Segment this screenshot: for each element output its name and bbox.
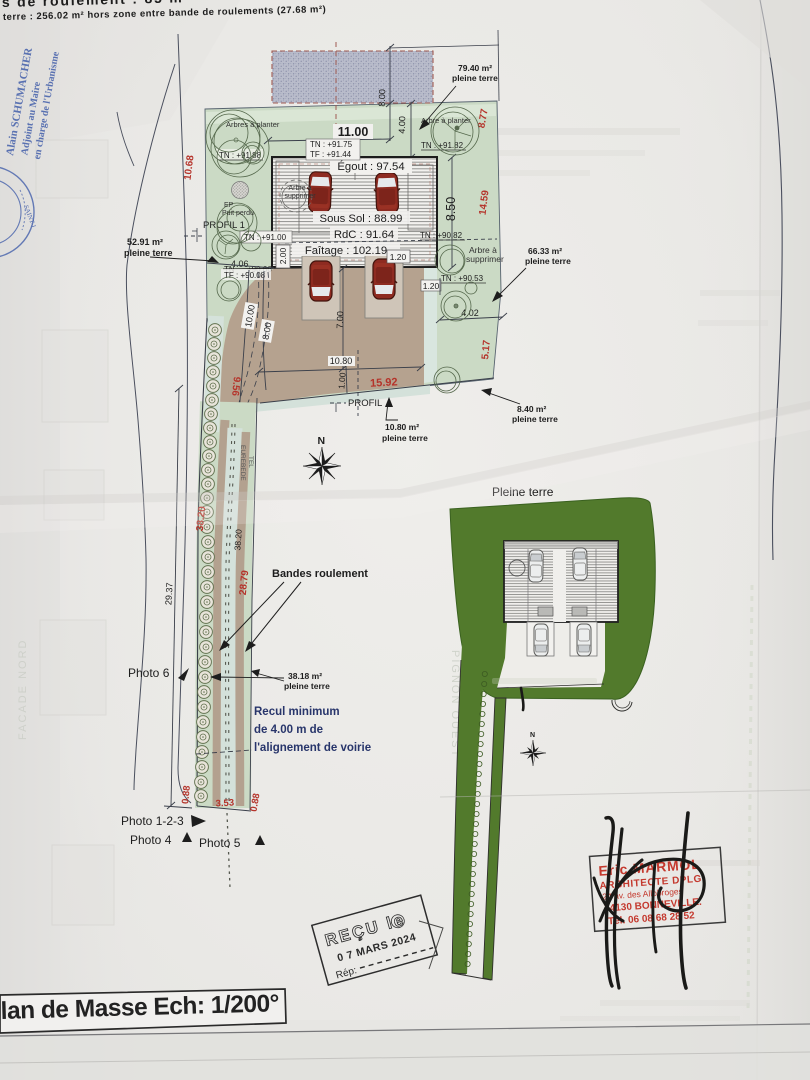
svg-text:66.33 m²: 66.33 m²: [528, 246, 562, 256]
svg-text:11.00: 11.00: [338, 125, 369, 139]
svg-text:8.50: 8.50: [444, 197, 458, 221]
svg-text:N: N: [318, 435, 326, 447]
svg-text:1.00: 1.00: [336, 372, 347, 390]
svg-text:pleine terre: pleine terre: [452, 73, 498, 83]
svg-text:4.00: 4.00: [397, 116, 408, 134]
svg-text:EUREBEDE: EUREBEDE: [239, 445, 246, 481]
svg-text:15.92: 15.92: [370, 376, 398, 389]
svg-text:Photo 6: Photo 6: [128, 666, 170, 680]
svg-text:l'alignement de voirie: l'alignement de voirie: [254, 742, 371, 754]
svg-text:pleine terre: pleine terre: [124, 248, 173, 258]
svg-text:1.20: 1.20: [423, 281, 440, 291]
svg-text:TF : +90.08: TF : +90.08: [224, 271, 266, 280]
svg-text:N: N: [530, 732, 535, 739]
svg-text:pleine terre: pleine terre: [512, 414, 558, 424]
svg-text:PROFIL: PROFIL: [348, 398, 382, 409]
svg-text:10.80: 10.80: [330, 356, 353, 366]
svg-text:Égout : 97.54: Égout : 97.54: [337, 160, 404, 173]
svg-text:9.56: 9.56: [229, 376, 242, 397]
svg-text:Bandes roulement: Bandes roulement: [272, 568, 368, 580]
svg-text:Puit perdu: Puit perdu: [222, 210, 254, 217]
svg-text:PROFIL 1: PROFIL 1: [203, 220, 245, 231]
svg-text:79.40 m²: 79.40 m²: [458, 63, 492, 73]
svg-text:RdC : 91.64: RdC : 91.64: [334, 229, 394, 241]
svg-text:EP: EP: [224, 202, 234, 209]
svg-text:TEL: TEL: [247, 456, 254, 468]
svg-text:38.20: 38.20: [232, 529, 243, 551]
svg-text:29.37: 29.37: [163, 582, 174, 605]
svg-text:pleine terre: pleine terre: [284, 681, 330, 691]
svg-text:Faîtage : 102.19: Faîtage : 102.19: [305, 245, 387, 257]
svg-text:8.40 m²: 8.40 m²: [517, 404, 546, 414]
svg-text:pleine terre: pleine terre: [525, 256, 571, 266]
svg-text:Recul minimum: Recul minimum: [254, 706, 340, 718]
svg-text:TN : +90.82: TN : +90.82: [420, 231, 463, 240]
svg-text:TN : +91.75: TN : +91.75: [310, 140, 353, 149]
svg-text:5.17: 5.17: [480, 339, 493, 360]
svg-text:1.20: 1.20: [390, 252, 407, 262]
svg-text:10.80 m²: 10.80 m²: [385, 422, 419, 432]
svg-text:3.53: 3.53: [215, 798, 234, 810]
svg-text:0.88: 0.88: [180, 785, 193, 805]
svg-text:7.00: 7.00: [335, 311, 346, 329]
svg-text:Sous Sol : 88.99: Sous Sol : 88.99: [320, 213, 403, 225]
svg-text:de 4.00 m de: de 4.00 m de: [254, 724, 323, 736]
svg-text:TN : +90.53: TN : +90.53: [441, 274, 484, 283]
svg-text:Photo 5: Photo 5: [199, 836, 241, 850]
svg-text:Photo 1-2-3: Photo 1-2-3: [121, 814, 184, 828]
svg-text:Arbre à: Arbre à: [289, 185, 312, 192]
svg-text:52.91 m²: 52.91 m²: [127, 237, 163, 247]
svg-text:supprimer: supprimer: [466, 254, 504, 264]
svg-text:2.00: 2.00: [278, 247, 288, 264]
svg-text:38.18 m²: 38.18 m²: [288, 671, 322, 681]
svg-text:supprimer: supprimer: [284, 193, 316, 200]
svg-text:FACADE NORD: FACADE NORD: [17, 639, 29, 740]
svg-text:8.00: 8.00: [377, 89, 388, 107]
svg-text:Arbres à planter: Arbres à planter: [226, 120, 280, 129]
svg-text:pleine terre: pleine terre: [382, 433, 428, 443]
svg-text:TF : +91.44: TF : +91.44: [310, 150, 352, 159]
svg-text:Photo 4: Photo 4: [130, 833, 172, 847]
